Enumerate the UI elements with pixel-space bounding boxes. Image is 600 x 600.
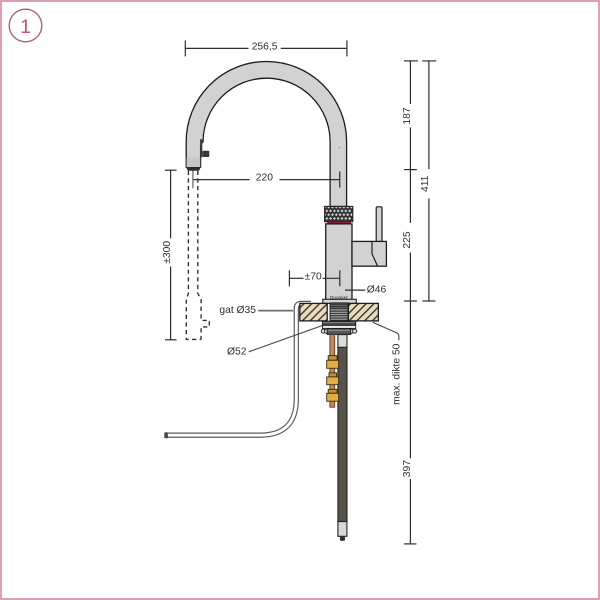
svg-text:±70: ±70 (305, 271, 322, 282)
svg-text:220: 220 (256, 173, 273, 184)
svg-text:187: 187 (402, 107, 413, 124)
svg-text:±300: ±300 (162, 241, 173, 264)
svg-text:411: 411 (420, 175, 431, 192)
svg-text:225: 225 (402, 231, 413, 248)
svg-text:Ø46: Ø46 (367, 285, 387, 296)
svg-text:Ø52: Ø52 (227, 347, 247, 358)
svg-text:1: 1 (20, 16, 31, 38)
svg-text:max. dikte 50: max. dikte 50 (392, 343, 403, 405)
svg-text:256,5: 256,5 (252, 41, 278, 52)
svg-text:gat Ø35: gat Ø35 (219, 305, 256, 316)
svg-text:397: 397 (402, 460, 413, 477)
